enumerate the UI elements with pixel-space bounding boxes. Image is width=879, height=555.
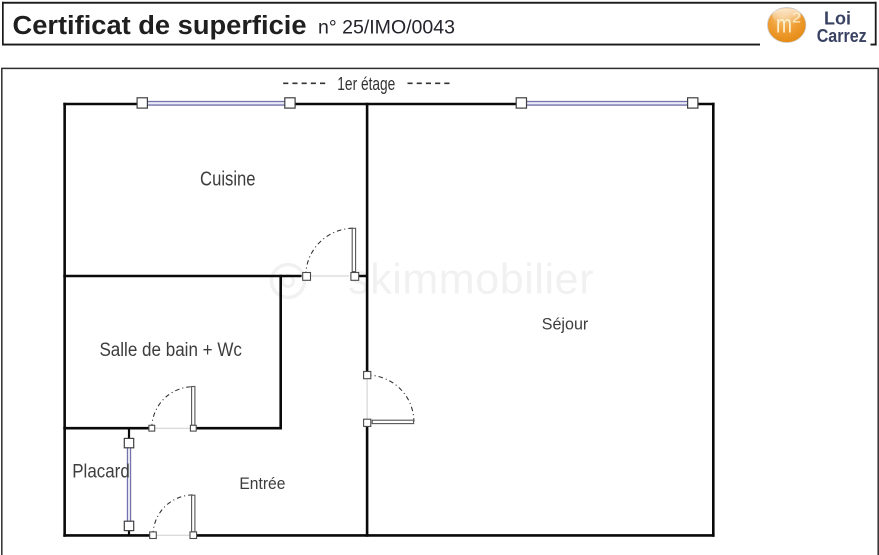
svg-text:1er étage: 1er étage: [337, 74, 395, 94]
svg-text:skimmobilier: skimmobilier: [348, 256, 594, 304]
svg-text:2: 2: [792, 11, 801, 27]
svg-text:Séjour: Séjour: [542, 315, 589, 334]
svg-text:Salle de bain + Wc: Salle de bain + Wc: [99, 340, 242, 361]
svg-text:m: m: [776, 10, 792, 38]
svg-text:n° 25/IMO/0043: n° 25/IMO/0043: [318, 17, 455, 39]
svg-text:Placard: Placard: [72, 461, 130, 482]
svg-text:Cuisine: Cuisine: [200, 169, 256, 191]
svg-text:Carrez: Carrez: [817, 26, 867, 46]
svg-text:Certificat de superficie: Certificat de superficie: [13, 10, 307, 40]
svg-text:Entrée: Entrée: [239, 475, 285, 493]
